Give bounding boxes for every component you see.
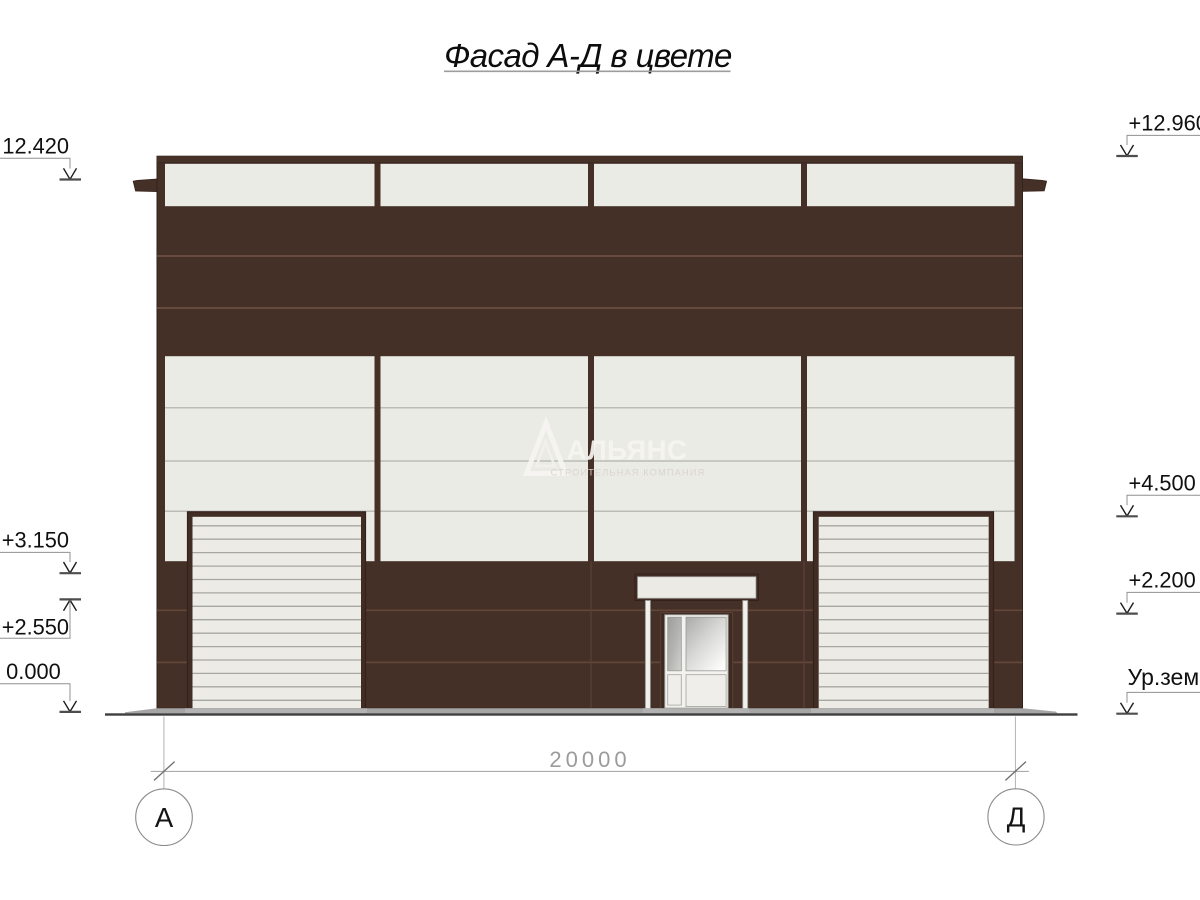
svg-text:0.000: 0.000 — [6, 659, 61, 684]
svg-text:+3.150: +3.150 — [2, 528, 69, 553]
svg-text:Ур.зем.: Ур.зем. — [1128, 664, 1200, 690]
svg-text:12.420: 12.420 — [2, 134, 69, 159]
svg-text:+2.200: +2.200 — [1129, 567, 1196, 592]
svg-text:СТРОИТЕЛЬНАЯ КОМПАНИЯ: СТРОИТЕЛЬНАЯ КОМПАНИЯ — [551, 468, 706, 478]
svg-text:+4.500: +4.500 — [1129, 470, 1196, 495]
svg-text:Д: Д — [1007, 802, 1026, 833]
svg-text:А: А — [155, 802, 174, 833]
svg-text:20000: 20000 — [549, 747, 630, 772]
svg-text:+2.550: +2.550 — [2, 615, 69, 640]
svg-text:+12.960: +12.960 — [1129, 110, 1200, 135]
svg-text:АЛЬЯНС: АЛЬЯНС — [567, 435, 688, 466]
svg-text:Фасад А-Д в цвете: Фасад А-Д в цвете — [444, 37, 732, 74]
